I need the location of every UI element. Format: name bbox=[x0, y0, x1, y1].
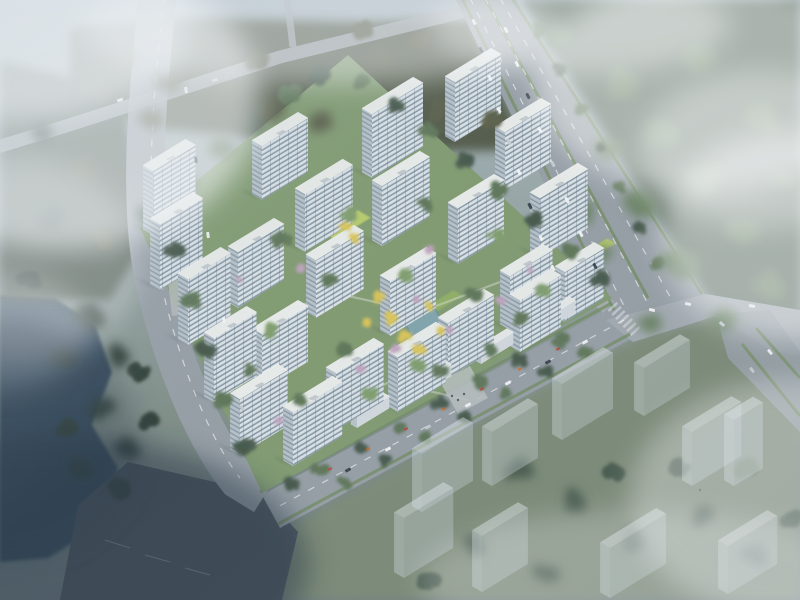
aerial-rendering-stage bbox=[0, 0, 800, 600]
atmosphere-tint bbox=[0, 0, 800, 600]
aerial-residential-complex-rendering bbox=[0, 0, 800, 600]
atmospheric-fog bbox=[0, 0, 800, 600]
